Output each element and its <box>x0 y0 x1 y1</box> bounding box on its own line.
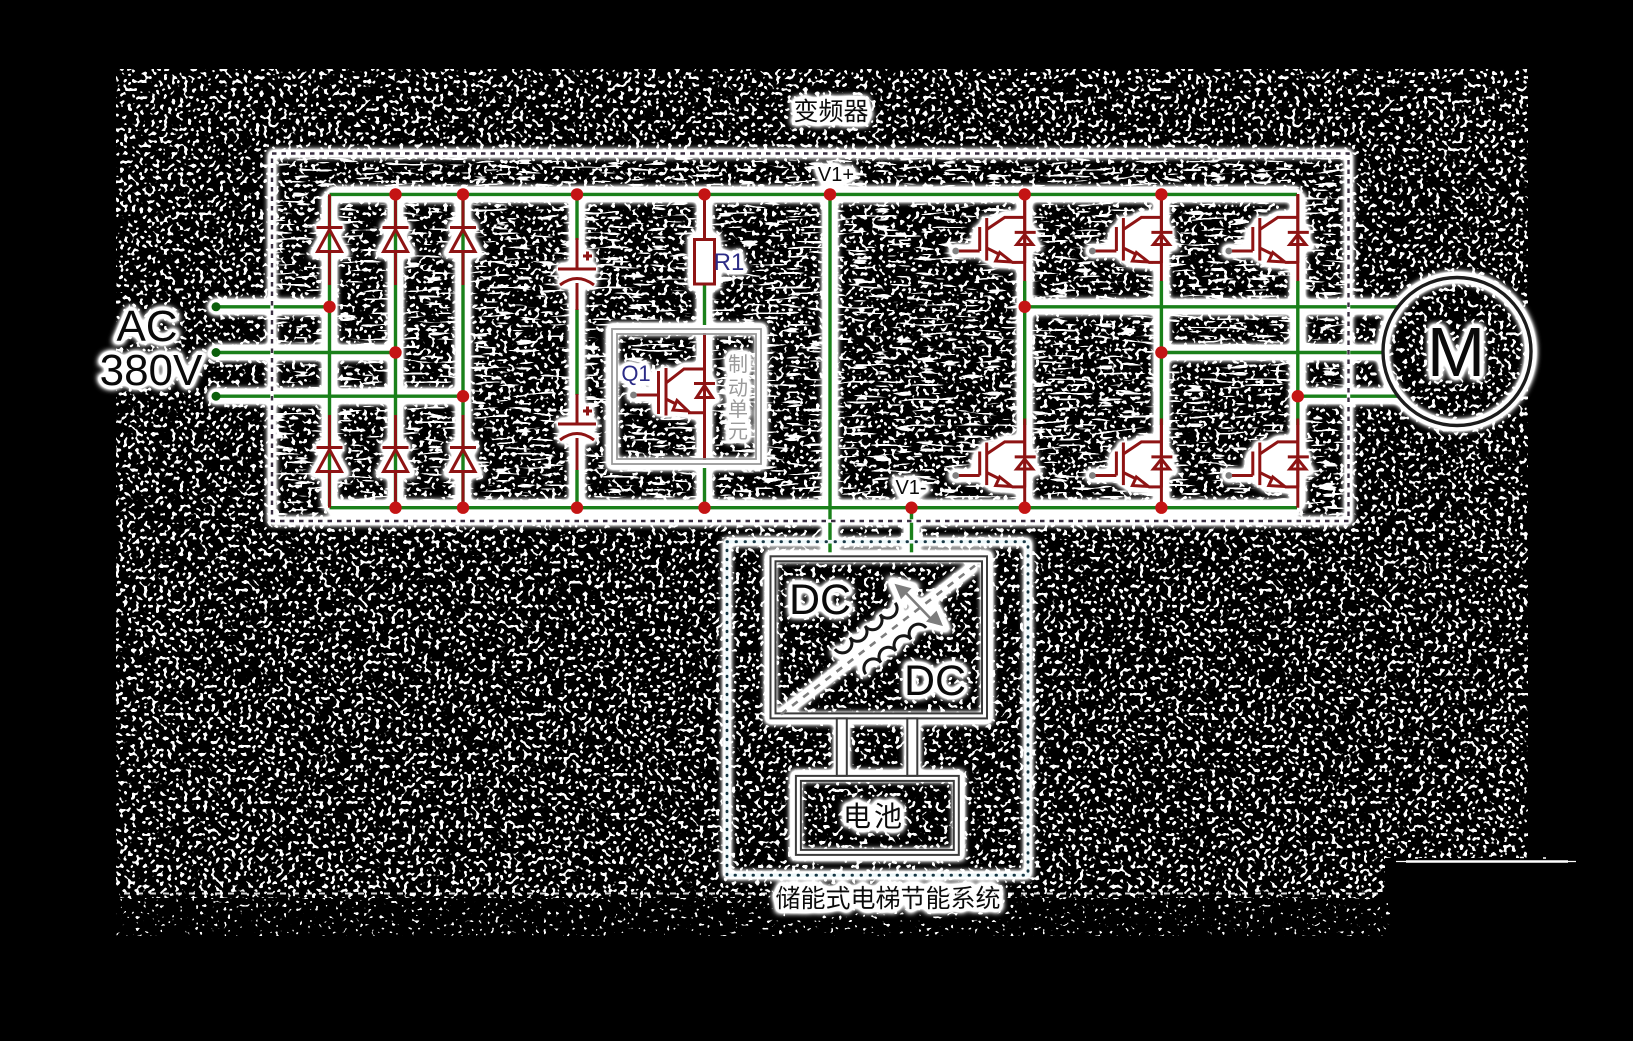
svg-text:V1+: V1+ <box>818 164 854 186</box>
svg-text:制: 制 <box>728 353 748 376</box>
svg-text:变频器: 变频器 <box>793 98 868 126</box>
svg-text:R1: R1 <box>714 249 745 276</box>
svg-text:M: M <box>1427 313 1485 391</box>
svg-text:元: 元 <box>728 421 748 443</box>
svg-text:单: 单 <box>728 398 748 421</box>
svg-text:Q1: Q1 <box>621 361 650 386</box>
svg-text:DC: DC <box>904 657 966 705</box>
svg-text:V1-: V1- <box>895 477 926 499</box>
svg-text:动: 动 <box>728 377 748 400</box>
svg-text:电池: 电池 <box>843 801 905 832</box>
svg-text:DC: DC <box>789 576 851 624</box>
svg-text:380V: 380V <box>100 346 203 395</box>
svg-text:AC: AC <box>116 302 177 351</box>
svg-text:储能式电梯节能系统: 储能式电梯节能系统 <box>775 885 1000 913</box>
